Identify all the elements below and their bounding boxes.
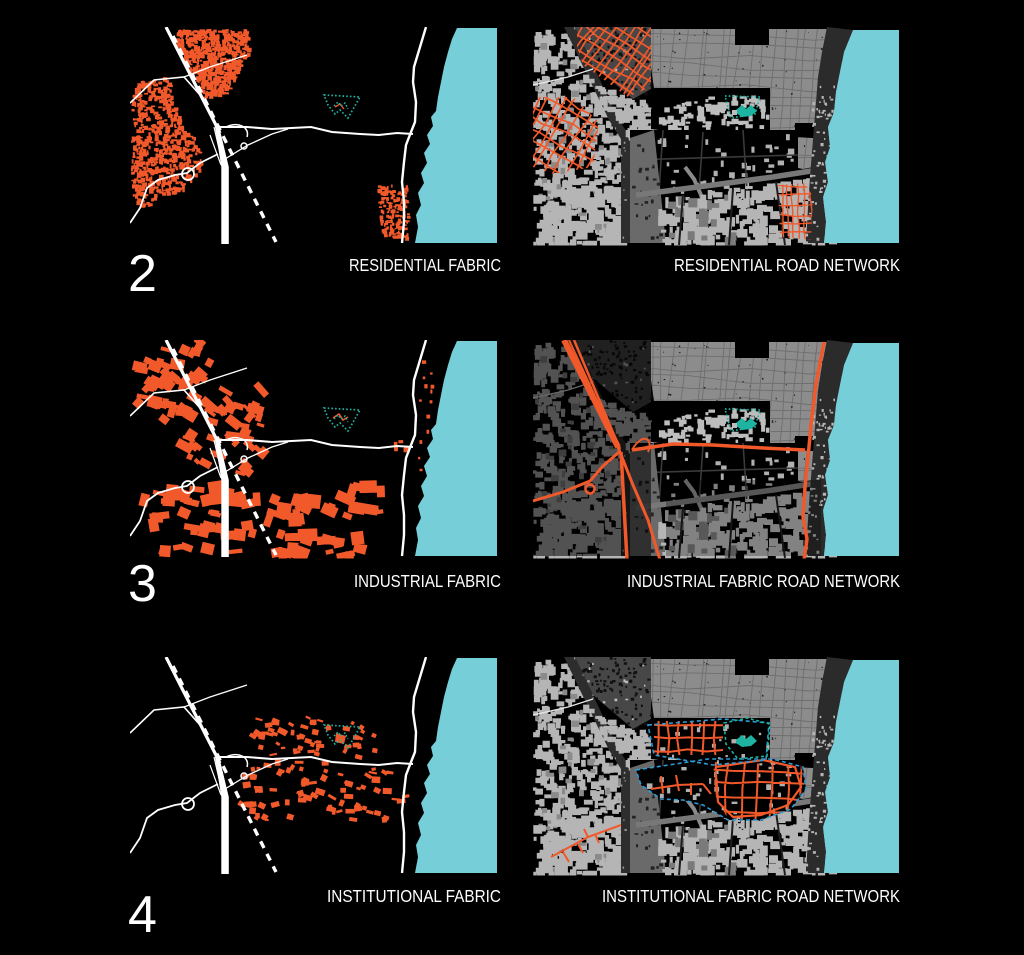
svg-text:4: 4 bbox=[128, 886, 157, 944]
svg-text:INSTITUTIONAL FABRIC: INSTITUTIONAL FABRIC bbox=[327, 886, 501, 906]
svg-text:INDUSTRIAL FABRIC ROAD NETWORK: INDUSTRIAL FABRIC ROAD NETWORK bbox=[627, 571, 900, 591]
svg-text:3: 3 bbox=[128, 555, 157, 613]
svg-text:INDUSTRIAL FABRIC: INDUSTRIAL FABRIC bbox=[354, 571, 501, 591]
svg-text:INSTITUTIONAL FABRIC ROAD NETW: INSTITUTIONAL FABRIC ROAD NETWORK bbox=[602, 886, 900, 906]
svg-text:RESIDENTIAL ROAD NETWORK: RESIDENTIAL ROAD NETWORK bbox=[674, 255, 900, 275]
svg-text:RESIDENTIAL FABRIC: RESIDENTIAL FABRIC bbox=[349, 255, 501, 275]
svg-text:2: 2 bbox=[128, 245, 157, 303]
